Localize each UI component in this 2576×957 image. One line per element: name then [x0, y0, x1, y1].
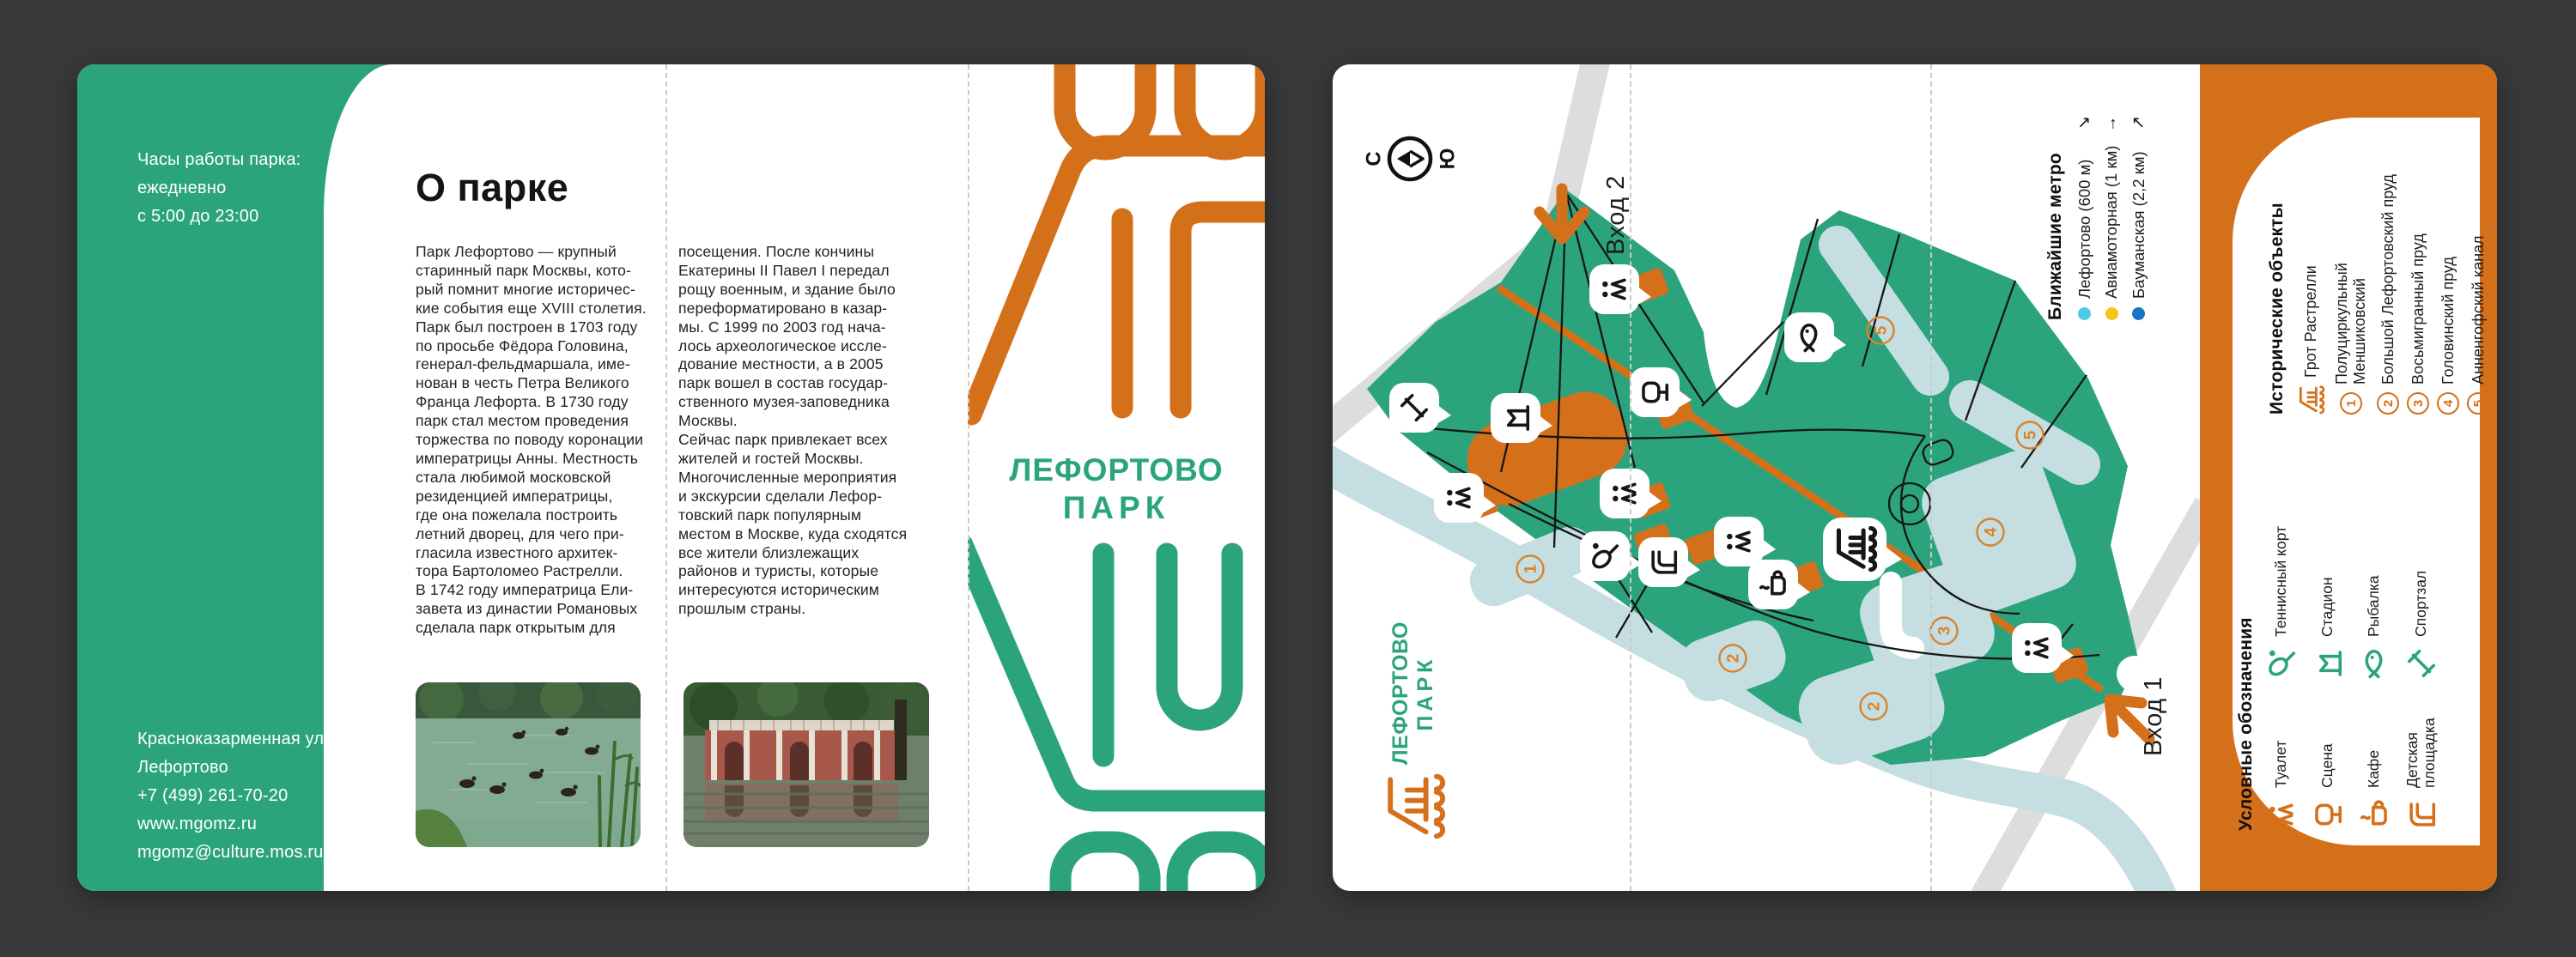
symbol-label: Детская площадка	[2404, 687, 2438, 788]
svg-text:С: С	[1363, 151, 1386, 166]
historic-object-label: Анненгофский канал	[2470, 235, 2488, 385]
page-title: О парке	[416, 166, 568, 210]
tennis-legend-icon	[2265, 644, 2298, 680]
grotto-icon	[1380, 773, 1447, 840]
compass-icon: С Ю	[1358, 131, 1465, 186]
svg-text:4: 4	[1983, 527, 2001, 536]
object-number-badge: 5	[2467, 392, 2489, 415]
historic-objects-legend: Исторические объекты Грот Растрелли1Полу…	[2267, 161, 2482, 415]
historic-object-label: Восьмигранный пруд	[2409, 233, 2427, 385]
metro-direction-arrow: ↘	[2075, 116, 2094, 130]
decorative-logo-panel: ЛЕФОРТОВО ПАРК	[968, 64, 1265, 891]
metro-station-name: Авиамоторная (1 км)	[2102, 141, 2121, 299]
historic-object-label: Головинский пруд	[2439, 257, 2458, 385]
fold-line	[1930, 64, 1932, 891]
toilet-legend-icon	[2265, 795, 2298, 831]
fish-icon	[2358, 647, 2391, 680]
metro-direction-arrow: →	[2102, 116, 2121, 132]
symbol-label: Спортзал	[2413, 500, 2430, 637]
grotto-reflection-photo	[683, 682, 929, 847]
entrance-2-label: Вход 2	[1602, 143, 1633, 255]
symbols-legend-title: Условные обозначения	[2236, 488, 2257, 831]
svg-text:5: 5	[1873, 325, 1891, 335]
svg-text:3: 3	[1936, 627, 1954, 636]
metro-station-name: Лефортово (600 м)	[2075, 138, 2094, 299]
park-hours: Часы работы парка: ежедневно с 5:00 до 2…	[137, 146, 301, 231]
symbol-label: Стадион	[2319, 500, 2336, 637]
metro-legend-title: Ближайшие метро	[2045, 116, 2066, 320]
symbol-label: Рыбалка	[2366, 500, 2383, 637]
playground-legend-icon	[2405, 795, 2438, 831]
metro-line-dot	[2105, 307, 2118, 320]
fold-line	[968, 64, 969, 891]
svg-text:2: 2	[1725, 654, 1743, 663]
brand-logo-block: ЛЕФОРТОВО ПАРК	[1362, 653, 1465, 840]
symbol-label: Кафе	[2366, 687, 2383, 788]
object-number-badge: 4	[2437, 392, 2459, 415]
gym-icon	[2405, 647, 2438, 680]
svg-text:5: 5	[2022, 430, 2040, 439]
logo-wordmark-line2: ПАРК	[1413, 621, 1438, 765]
fish-legend-icon	[2358, 644, 2391, 680]
grotto-logo-icon	[1380, 773, 1447, 840]
logo-wordmark-line1: ЛЕФОРТОВО	[1388, 621, 1413, 765]
brochure-front-page: Часы работы парка: ежедневно с 5:00 до 2…	[77, 64, 1265, 891]
gym-legend-icon	[2405, 644, 2438, 680]
fold-line	[665, 64, 667, 891]
historic-object-label: Большой Лефортовский пруд	[2379, 174, 2397, 385]
svg-text:1: 1	[1522, 564, 1540, 573]
metro-item: Авиамоторная (1 км)→	[2102, 116, 2121, 320]
object-number-badge: 1	[2340, 392, 2362, 415]
wordmark-line1: ЛЕФОРТОВО	[968, 452, 1265, 488]
symbol-label: Теннисный корт	[2273, 500, 2290, 637]
toilet-icon	[2265, 798, 2298, 831]
wordmark-line2: ПАРК	[968, 490, 1265, 526]
historic-object-item: 4Головинский пруд	[2437, 161, 2459, 415]
historic-object-label: Полуциркульный Меншиковский	[2333, 161, 2369, 385]
stage-legend-icon	[2312, 795, 2344, 831]
about-text-column-2: посещения. После кончины Екатерины II Па…	[678, 243, 945, 619]
metro-direction-arrow: ↗	[2129, 116, 2148, 130]
map-symbols-legend: Условные обозначения ТуалетТеннисный кор…	[2236, 488, 2482, 831]
duck-pond-photo	[416, 682, 641, 847]
metro-item: Бауманская (2,2 км)↗	[2129, 116, 2148, 320]
playground-icon	[2405, 798, 2438, 831]
stadium-icon	[2312, 647, 2344, 680]
about-text-column-1: Парк Лефортово — крупный старинный парк …	[416, 243, 665, 638]
cafe-icon	[2358, 798, 2391, 831]
historic-object-item: Грот Растрелли	[2296, 161, 2325, 415]
tennis-icon	[2265, 647, 2298, 680]
historic-object-label: Грот Растрелли	[2302, 265, 2320, 378]
grotto-logo-icon	[2296, 385, 2325, 415]
metro-line-dot	[2078, 307, 2091, 320]
stage-icon	[2312, 798, 2344, 831]
brochure-map-page: 1223455 С Ю Вход 2 Вход 1 Ближайшие метр…	[1333, 64, 2497, 891]
entrance-1-label: Вход 1	[2140, 649, 2172, 756]
metro-legend: Ближайшие метро Лефортово (600 м)↘Авиамо…	[2045, 116, 2167, 320]
historic-object-item: 3Восьмигранный пруд	[2407, 161, 2429, 415]
metro-line-dot	[2132, 307, 2145, 320]
metro-item: Лефортово (600 м)↘	[2075, 116, 2094, 320]
object-number-badge: 2	[2377, 392, 2399, 415]
cafe-legend-icon	[2358, 795, 2391, 831]
brochure-mockup: Часы работы парка: ежедневно с 5:00 до 2…	[0, 0, 2576, 957]
historic-object-item: 2Большой Лефортовский пруд	[2377, 161, 2399, 415]
historic-object-item: 5Анненгофский канал	[2467, 161, 2489, 415]
historic-object-item: 1Полуциркульный Меншиковский	[2333, 161, 2369, 415]
symbol-label: Сцена	[2319, 687, 2336, 788]
park-contact-info: Красноказарменная ул., 3 Лефортово +7 (4…	[137, 725, 349, 867]
svg-text:Ю: Ю	[1437, 148, 1460, 170]
metro-station-name: Бауманская (2,2 км)	[2129, 138, 2148, 299]
historic-legend-title: Исторические объекты	[2267, 161, 2287, 415]
object-number-badge: 3	[2407, 392, 2429, 415]
symbol-label: Туалет	[2273, 687, 2290, 788]
fold-line	[1630, 64, 1631, 891]
stadium-legend-icon	[2312, 644, 2344, 680]
grotto-icon	[2296, 385, 2325, 415]
svg-text:2: 2	[1866, 702, 1884, 712]
